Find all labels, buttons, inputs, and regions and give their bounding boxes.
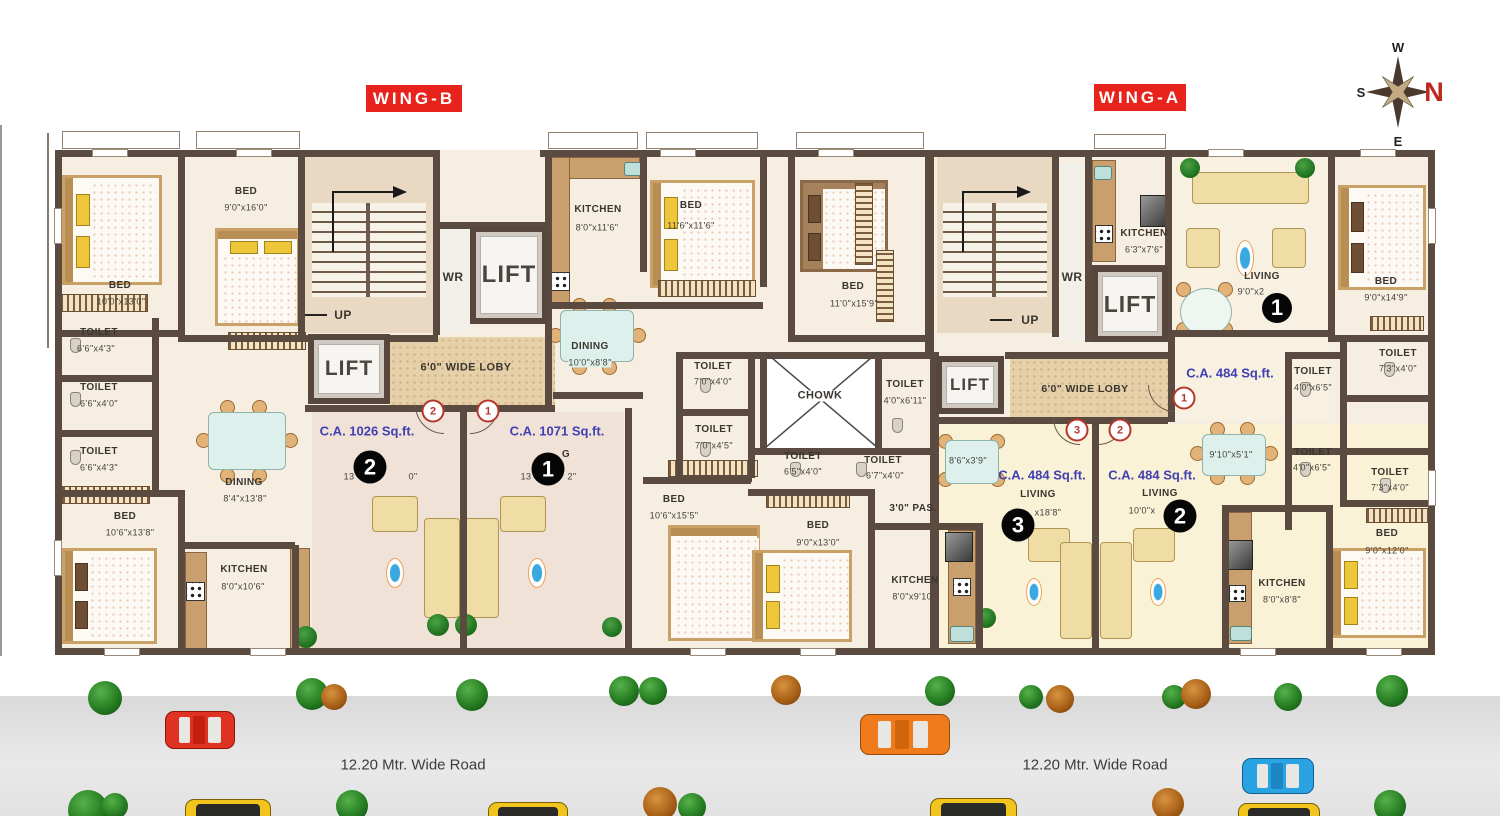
room-dims: 8'0"x10'6": [221, 583, 264, 592]
wall: [1005, 352, 1170, 359]
vase: [528, 558, 546, 588]
wall: [1085, 157, 1092, 342]
plant: [602, 617, 622, 637]
sink: [950, 626, 974, 642]
tree: [1376, 675, 1408, 707]
plant: [1295, 158, 1315, 178]
room-label-fragment: G: [562, 450, 570, 460]
chowk-label: CHOWK: [795, 391, 846, 402]
up-dash: [990, 319, 1012, 321]
bed: [752, 550, 852, 642]
round-table-a1: [1180, 288, 1232, 336]
bed: [62, 548, 157, 644]
wall: [298, 150, 305, 338]
room-label: DINING: [571, 342, 608, 352]
up-label: UP: [334, 309, 351, 321]
car-red: [165, 711, 235, 749]
lift-wing-b-lower: LIFT: [308, 334, 390, 404]
window: [690, 648, 726, 656]
room-dims: 6'3"x7'6": [1125, 246, 1163, 255]
room-dims: 4'0"x6'11": [884, 397, 927, 406]
wall: [676, 409, 752, 416]
lift-label: LIFT: [942, 362, 998, 408]
room-dims: 9'0"x12'0": [1365, 547, 1408, 556]
room-label: BED: [114, 512, 136, 522]
lift-wing-a-lower: LIFT: [936, 356, 1004, 414]
room-dims: 10'0"x13'0": [97, 298, 146, 307]
unit-number-a3: 3: [1002, 509, 1035, 542]
room-dims: 6'7"x4'0": [866, 472, 904, 481]
sink: [1094, 166, 1112, 180]
door-tag-unit-b2: 2: [422, 400, 445, 423]
fridge: [1227, 540, 1253, 570]
sink: [1230, 626, 1252, 641]
plant: [1180, 158, 1200, 178]
window: [250, 648, 286, 656]
window: [1428, 470, 1436, 506]
bed: [1330, 548, 1426, 638]
wall: [625, 408, 632, 648]
room-dims: 10'6"x15'5": [650, 512, 699, 521]
room-label: TOILET: [886, 380, 924, 390]
wing-a-tag: WING-A: [1094, 84, 1186, 111]
wall: [788, 157, 795, 337]
room-label: BED: [807, 521, 829, 531]
stove: [953, 578, 971, 596]
tree: [321, 684, 347, 710]
lift-label: LIFT: [1098, 272, 1162, 336]
wall: [1222, 505, 1229, 648]
window: [236, 149, 272, 157]
wall: [1222, 505, 1330, 512]
tree: [1181, 679, 1211, 709]
balcony-outline: [1094, 134, 1166, 149]
compass-e: E: [1394, 134, 1403, 149]
door-tag-unit-a1: 1: [1173, 387, 1196, 410]
balcony-outline: [796, 132, 924, 149]
tree: [102, 793, 128, 816]
road-label-left: 12.20 Mtr. Wide Road: [340, 757, 485, 774]
window: [1208, 149, 1244, 157]
balcony-outline: [548, 132, 638, 149]
room-label: LIVING: [1244, 272, 1280, 282]
lift-label: LIFT: [476, 232, 542, 318]
lobby-label: 6'0" WIDE LOBY: [1041, 384, 1128, 395]
floor-wr-a: [1059, 164, 1086, 340]
lift-wing-a-upper: LIFT: [1092, 266, 1168, 342]
room-label: KITCHEN: [891, 576, 938, 586]
wall: [640, 157, 647, 272]
room-label: BED: [235, 187, 257, 197]
window: [818, 149, 854, 157]
boundary-line: [0, 125, 2, 656]
room-dims: x18'8": [1035, 509, 1062, 518]
sofa: [1192, 172, 1309, 204]
compass-rose: W S E N: [1352, 34, 1444, 150]
dining-table: [560, 310, 634, 362]
window: [1360, 149, 1396, 157]
sofa: [424, 518, 460, 618]
compass-s: S: [1357, 85, 1366, 100]
wall: [868, 489, 875, 648]
room-dims: 6'5"x4'0": [784, 468, 822, 477]
room-label: DINING: [225, 478, 262, 488]
room-label: KITCHEN: [574, 205, 621, 215]
passage-label: 3'0" PAS.: [889, 504, 936, 514]
wall: [178, 150, 185, 338]
room-label: BED: [663, 495, 685, 505]
room-dims: 9'0"x13'0": [796, 539, 839, 548]
wall: [553, 392, 643, 399]
window: [1366, 648, 1402, 656]
window: [1240, 648, 1276, 656]
room-label: KITCHEN: [220, 565, 267, 575]
window: [92, 149, 128, 157]
wall: [1340, 340, 1347, 500]
wall: [460, 408, 467, 648]
tree: [1019, 685, 1043, 709]
table-dims: 9'10"x5'1": [1209, 451, 1252, 460]
unit-number-a1: 1: [1262, 293, 1292, 323]
room-dims: 8'0"x9'10": [892, 593, 935, 602]
vase: [1026, 578, 1042, 606]
wall: [1285, 352, 1292, 530]
room-label: BED: [1375, 277, 1397, 287]
floor-plan-canvas: LIFT LIFT LIFT LIFT 2 1 1 3 2: [0, 0, 1500, 816]
room-label: TOILET: [80, 328, 118, 338]
room-dims: 8'0"x8'8": [1263, 596, 1301, 605]
carpet-area-b1: C.A. 1071 Sq.ft.: [510, 424, 605, 439]
room-dims-fragment: 13: [521, 473, 532, 482]
window: [660, 149, 696, 157]
tree: [771, 675, 801, 705]
wall: [873, 523, 983, 530]
vase: [1150, 578, 1166, 606]
compass-n: N: [1424, 77, 1444, 107]
sofa: [372, 496, 418, 532]
wall: [1168, 330, 1333, 337]
tree: [678, 793, 706, 816]
room-label: BED: [1376, 529, 1398, 539]
unit-number-b1: 1: [532, 453, 565, 486]
balcony-outline: [62, 131, 180, 149]
sofa: [1186, 228, 1220, 268]
room-label: TOILET: [1294, 448, 1332, 458]
room-dims: 7'0"x4'0": [694, 378, 732, 387]
wr-label: WR: [443, 271, 464, 283]
room-label: KITCHEN: [1258, 579, 1305, 589]
lobby-label: 6'0" WIDE LOBY: [420, 363, 511, 374]
wall: [178, 494, 185, 648]
window: [54, 208, 62, 244]
wall: [925, 157, 934, 352]
room-dims-fragment: 13: [344, 473, 355, 482]
car-blue: [1242, 758, 1314, 794]
plant: [427, 614, 449, 636]
room-label: TOILET: [80, 383, 118, 393]
wall: [788, 335, 933, 342]
car-parked: [185, 799, 271, 816]
stove: [551, 272, 570, 291]
tree: [609, 676, 639, 706]
wall: [292, 545, 299, 648]
carpet-area-a3: C.A. 484 Sq.ft.: [998, 468, 1085, 483]
room-dims: 7'3"x4'0": [1371, 484, 1409, 493]
room-dims: 10'0"x8'8": [568, 359, 611, 368]
wall: [55, 430, 155, 437]
room-dims: 6'6"x4'3": [77, 345, 115, 354]
tree: [1274, 683, 1302, 711]
room-dims: 10'6"x13'8": [106, 529, 155, 538]
kitchen-platform: [1228, 512, 1252, 644]
wall: [1326, 505, 1333, 648]
boundary-line: [47, 133, 49, 348]
room-label: BED: [680, 201, 702, 211]
room-dims: 9'0"x16'0": [224, 204, 267, 213]
room-dims: 8'4"x13'8": [223, 495, 266, 504]
wall: [540, 150, 935, 157]
room-label: LIVING: [1142, 489, 1178, 499]
wall: [752, 448, 935, 455]
tree: [643, 787, 677, 816]
car-parked: [930, 798, 1017, 816]
room-dims: 10'0"x: [1129, 507, 1156, 516]
room-dims: 9'0"x2: [1238, 288, 1265, 297]
room-dims: 6'6"x4'0": [80, 400, 118, 409]
lift-wing-b-upper: LIFT: [470, 226, 548, 324]
room-dims: 11'6"x11'6": [667, 222, 714, 231]
carpet-area-b2: C.A. 1026 Sq.ft.: [320, 424, 415, 439]
bed: [215, 228, 300, 326]
wing-b-tag: WING-B: [366, 85, 462, 112]
wall: [1340, 395, 1432, 402]
unit-number-b2: 2: [354, 451, 387, 484]
car-orange: [860, 714, 950, 755]
room-label: TOILET: [694, 362, 732, 372]
compass-w: W: [1392, 40, 1405, 55]
room-label: BED: [842, 282, 864, 292]
tree: [1374, 790, 1406, 816]
wall: [1328, 157, 1335, 335]
room-label: TOILET: [1379, 349, 1417, 359]
room-label: TOILET: [1371, 468, 1409, 478]
room-label: BED: [109, 281, 131, 291]
sofa: [1133, 528, 1175, 562]
balcony-outline: [196, 131, 300, 149]
wardrobe: [855, 183, 873, 265]
stove: [186, 582, 205, 601]
car-parked: [488, 802, 568, 816]
stove: [1095, 225, 1113, 243]
up-dash: [305, 314, 327, 316]
wall: [55, 375, 155, 382]
stair-up-arrow: [937, 160, 1053, 270]
bed: [800, 180, 888, 272]
window: [1428, 208, 1436, 244]
room-label: TOILET: [80, 447, 118, 457]
bed: [668, 525, 760, 641]
window: [104, 648, 140, 656]
wall: [185, 542, 295, 549]
fridge: [945, 532, 973, 562]
tree: [1152, 788, 1184, 816]
room-dims: 7'3"x4'0": [1379, 365, 1417, 374]
room-label: TOILET: [864, 456, 902, 466]
wall: [1052, 157, 1059, 337]
room-label: LIVING: [1020, 490, 1056, 500]
road-label-right: 12.20 Mtr. Wide Road: [1022, 757, 1167, 774]
window: [800, 648, 836, 656]
wardrobe: [1370, 316, 1424, 331]
balcony-outline: [646, 132, 758, 149]
wall: [55, 490, 185, 497]
sofa: [1060, 542, 1092, 639]
room-dims: 4'0"x6'5": [1294, 384, 1332, 393]
sofa: [463, 518, 499, 618]
wall: [55, 330, 185, 337]
room-dims-fragment: 0": [408, 473, 417, 482]
wall: [1285, 352, 1345, 359]
wardrobe: [876, 250, 894, 322]
wall: [548, 302, 763, 309]
sofa: [500, 496, 546, 532]
bed: [650, 180, 755, 288]
up-label: UP: [1021, 314, 1038, 326]
room-dims: 4'0"x6'5": [1293, 464, 1331, 473]
wardrobe: [1366, 508, 1430, 523]
room-dims: 6'6"x4'3": [80, 464, 118, 473]
room-dims: 9'0"x14'9": [1364, 294, 1407, 303]
door-tag-unit-a3: 3: [1066, 419, 1089, 442]
tree: [456, 679, 488, 711]
room-label: TOILET: [1294, 367, 1332, 377]
carpet-area-a2: C.A. 484 Sq.ft.: [1108, 468, 1195, 483]
wall: [1340, 500, 1432, 507]
table-dims: 8'6"x3'9": [949, 457, 987, 466]
tree: [1046, 685, 1074, 713]
tree: [88, 681, 122, 715]
door-tag-unit-b1: 1: [477, 400, 500, 423]
toilet-fixture: [892, 418, 903, 433]
room-label: KITCHEN: [1120, 229, 1167, 239]
vase: [386, 558, 404, 588]
window: [54, 540, 62, 576]
wall: [748, 489, 875, 496]
room-dims: 11'0"x15'9": [830, 300, 878, 309]
bed: [1338, 185, 1426, 290]
lift-label: LIFT: [314, 340, 384, 398]
wardrobe: [658, 280, 756, 297]
unit-number-a2: 2: [1164, 500, 1197, 533]
wr-label: WR: [1062, 271, 1083, 283]
room-label: TOILET: [784, 452, 822, 462]
wall: [976, 523, 983, 648]
tree: [336, 790, 368, 816]
wall: [760, 157, 767, 287]
sofa: [1272, 228, 1306, 268]
fridge: [1140, 195, 1168, 227]
wall: [433, 150, 440, 335]
bed: [62, 175, 162, 285]
wall: [1092, 420, 1099, 648]
stair-up-arrow: [305, 160, 433, 270]
dining-table: [208, 412, 286, 470]
car-parked: [1238, 803, 1320, 816]
carpet-area-a1: C.A. 484 Sq.ft.: [1186, 366, 1273, 381]
wall: [932, 417, 1168, 424]
room-dims-fragment: 2": [567, 473, 576, 482]
room-label: TOILET: [695, 425, 733, 435]
wall: [152, 318, 159, 494]
sofa: [1100, 542, 1132, 639]
tree: [925, 676, 955, 706]
door-tag-unit-a2: 2: [1109, 419, 1132, 442]
tree: [639, 677, 667, 705]
room-dims: 8'0"x11'6": [576, 224, 619, 233]
room-dims: 7'0"x4'5": [695, 442, 733, 451]
wall: [676, 475, 752, 482]
stove: [1229, 585, 1246, 602]
